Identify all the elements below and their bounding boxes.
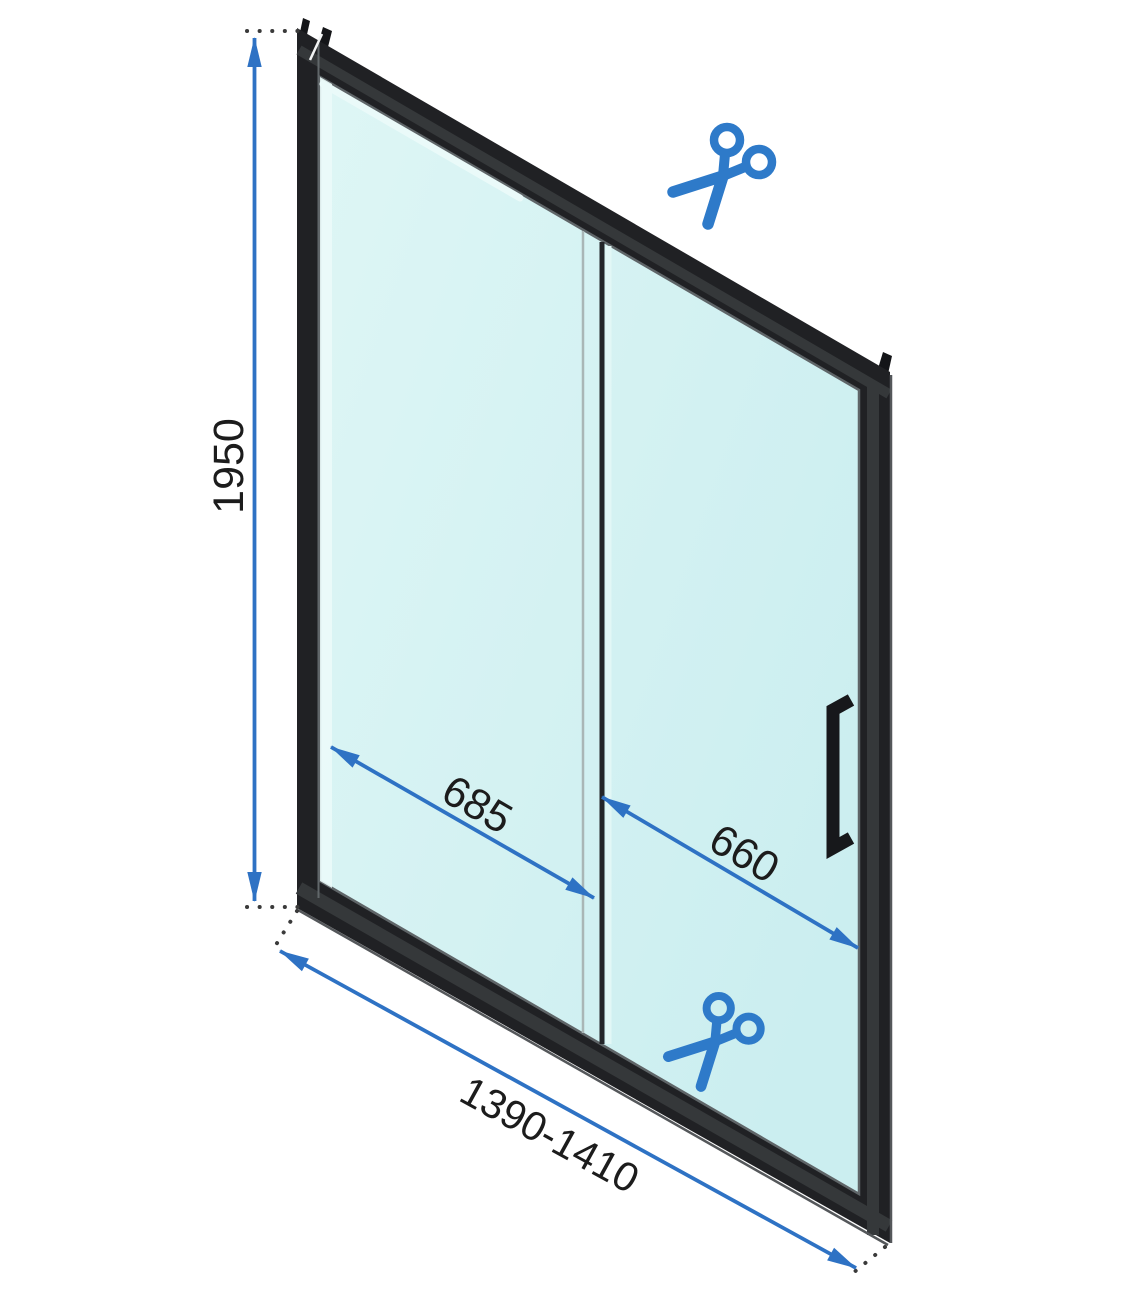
dimension-height: 1950 xyxy=(205,31,303,907)
glass-panels xyxy=(320,77,859,1194)
shower-door xyxy=(297,18,892,1245)
shower-door-dimension-diagram: 1950 685 660 1390-1410 xyxy=(0,0,1130,1301)
scissors-icon-top xyxy=(673,127,772,224)
extension-line-left xyxy=(274,911,297,948)
height-label: 1950 xyxy=(205,418,253,514)
extension-line-right xyxy=(853,1247,885,1273)
diagram-canvas: 1950 685 660 1390-1410 xyxy=(0,0,1130,1301)
glass-left-highlight xyxy=(320,77,332,888)
